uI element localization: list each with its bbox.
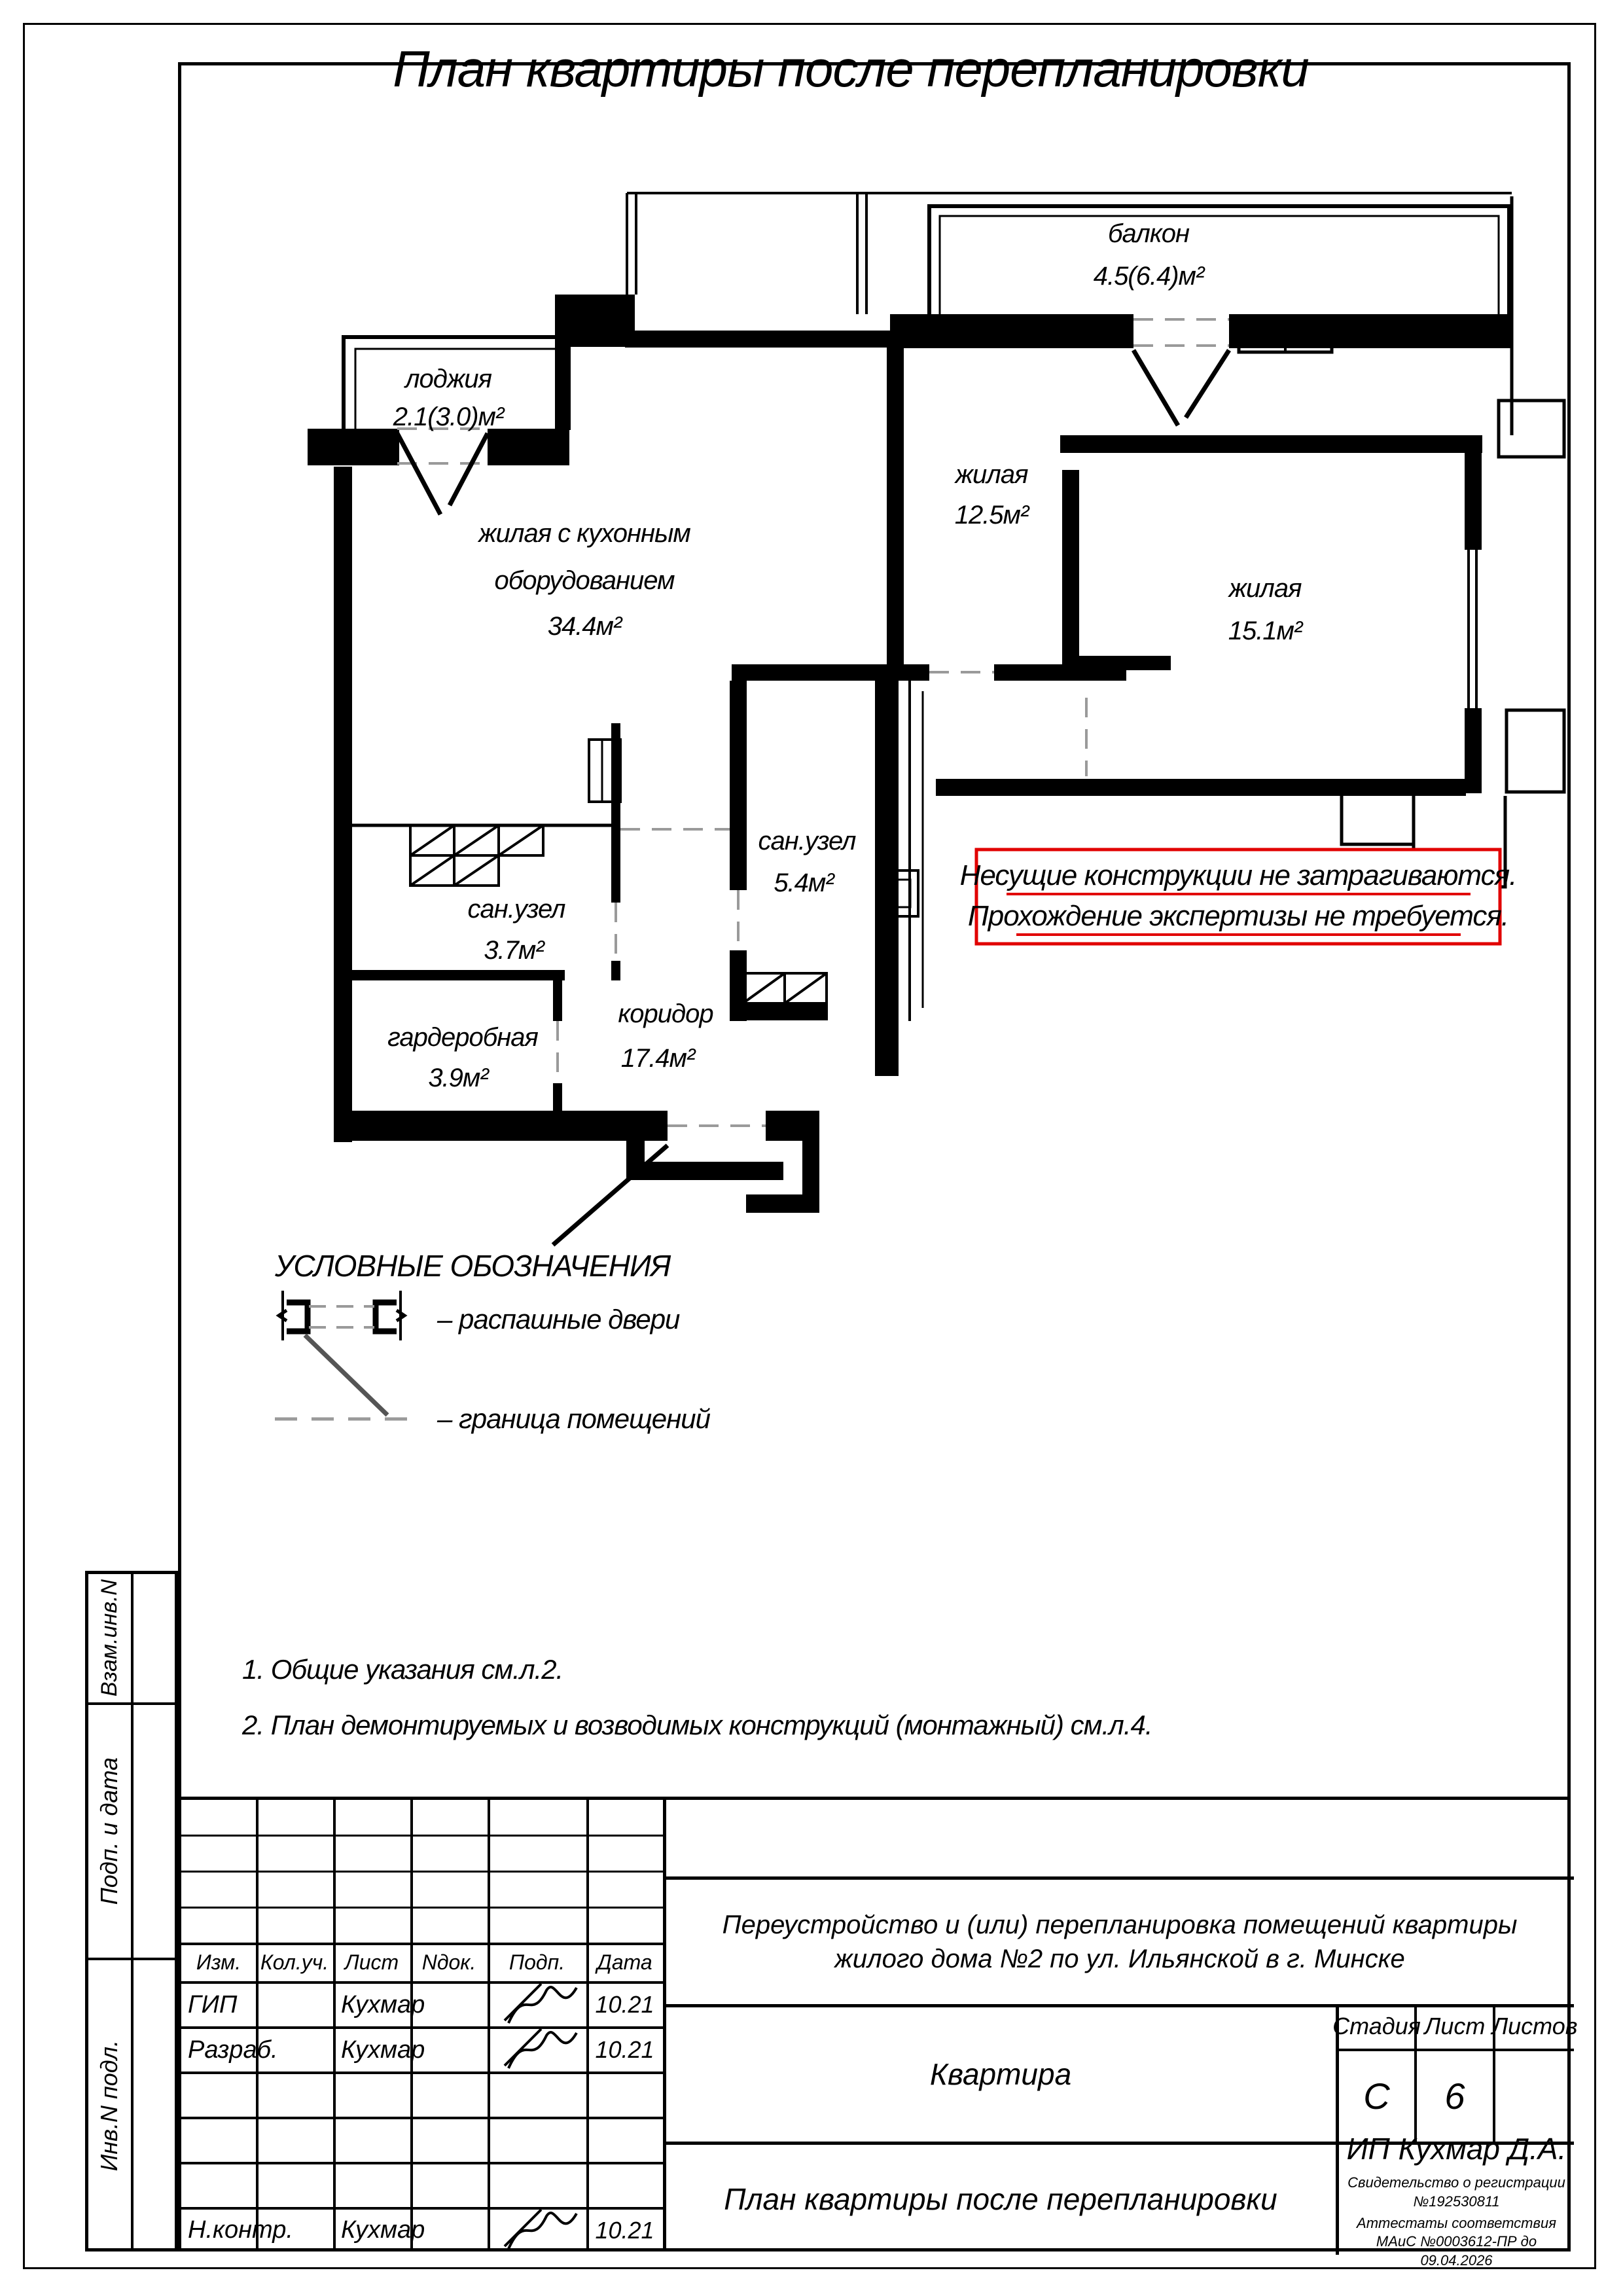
tb-col-list: Лист: [333, 1944, 410, 1981]
tb-date-gip: 10.21: [586, 1984, 663, 2026]
room-zhilaya2-area: 15.1м²: [1228, 617, 1304, 645]
note-2: 2. План демонтируемых и возводимых конст…: [241, 1710, 1152, 1740]
room-balkon-name: балкон: [1108, 219, 1190, 248]
tb-doc-title: План квартиры после перепланировки: [666, 2145, 1336, 2255]
tb-date-razrab: 10.21: [586, 2029, 663, 2072]
room-sanuzel1-name: сан.узел: [758, 827, 856, 855]
tb-col-izm: Изм.: [181, 1944, 256, 1981]
room-sanuzel2-area: 3.7м²: [484, 936, 545, 965]
room-lodzhiya-name: лоджия: [404, 365, 492, 393]
tb-name-nkontr: Кухмар: [341, 2210, 485, 2251]
tb-sheets-label: Листов: [1495, 2004, 1574, 2049]
tb-sheet-label: Лист: [1417, 2004, 1493, 2049]
note-1: 1. Общие указания см.л.2.: [242, 1654, 563, 1685]
room-koridor-name: коридор: [618, 999, 713, 1028]
room-koridor-area: 17.4м²: [621, 1044, 696, 1073]
room-balkon-area: 4.5(6.4)м²: [1094, 262, 1205, 291]
sidebar-label-inv: Инв.N подл.: [94, 2040, 125, 2171]
tb-col-ndok: Nдок.: [410, 1944, 488, 1981]
room-kitchen-area: 34.4м²: [548, 612, 623, 641]
door-symbol-icon: [279, 1291, 404, 1415]
page-title: План квартиры после перепланировки: [393, 40, 1309, 98]
tb-col-data: Дата: [586, 1944, 663, 1981]
sidebar-label-vzam: Взам.инв.N: [95, 1579, 124, 1696]
room-zhilaya1-name: жилая: [954, 460, 1029, 489]
tb-role-gip: ГИП: [188, 1984, 332, 2026]
notes: 1. Общие указания см.л.2. 2. План демонт…: [241, 1654, 1152, 1740]
tb-company-cell: ИП Кухмар Д.А. Свидетельство о регистрац…: [1339, 2145, 1574, 2255]
red-note-line1: Несущие конструкции не затрагиваются.: [960, 859, 1517, 891]
tb-project-line2: жилого дома №2 по ул. Ильянской в г. Мин…: [834, 1942, 1404, 1976]
title-block: Изм. Кол.уч. Лист Nдок. Подп. Дата ГИП К…: [178, 1797, 1571, 2251]
red-note-line2: Прохождение экспертизы не требуется.: [968, 900, 1508, 932]
room-garderob-area: 3.9м²: [428, 1064, 490, 1092]
tb-stage-value: С: [1339, 2051, 1414, 2142]
tb-name-gip: Кухмар: [341, 1984, 485, 2026]
tb-sheet-value: 6: [1417, 2051, 1493, 2142]
room-zhilaya2-name: жилая: [1228, 574, 1302, 603]
tb-date-nkontr: 10.21: [586, 2210, 663, 2251]
room-zhilaya1-area: 12.5м²: [955, 501, 1030, 529]
sidebar-label-podp: Подп. и дата: [94, 1757, 125, 1905]
room-lodzhiya-area: 2.1(3.0)м²: [393, 403, 505, 431]
drawing-sheet: План квартиры после перепланировки: [0, 0, 1623, 2296]
legend-boundary-label: – граница помещений: [437, 1403, 711, 1434]
sidebar-table: Взам.инв.N Подп. и дата Инв.N подл.: [85, 1571, 178, 2251]
signature-gip: [495, 1981, 594, 2027]
tb-company: ИП Кухмар Д.А.: [1347, 2130, 1567, 2169]
room-kitchen-line2: оборудованием: [495, 566, 675, 595]
tb-stage-label: Стадия: [1339, 2004, 1414, 2049]
room-kitchen-line1: жилая с кухонным: [477, 519, 690, 548]
door-leaves: [397, 350, 1229, 1245]
signature-razrab: [495, 2026, 594, 2072]
tb-role-nkontr: Н.контр.: [188, 2210, 332, 2251]
red-note-box: Несущие конструкции не затрагиваются. Пр…: [960, 850, 1517, 944]
legend-title: УСЛОВНЫЕ ОБОЗНАЧЕНИЯ: [274, 1249, 671, 1283]
room-garderob-name: гардеробная: [387, 1023, 538, 1052]
legend: УСЛОВНЫЕ ОБОЗНАЧЕНИЯ – распашные двери –…: [274, 1249, 711, 1434]
tb-cert2: Аттестаты соответствия МАиС №0003612-ПР …: [1339, 2214, 1574, 2270]
tb-col-koluch: Кол.уч.: [256, 1944, 333, 1981]
room-sanuzel2-name: сан.узел: [468, 895, 565, 924]
tb-name-razrab: Кухмар: [341, 2029, 485, 2072]
legend-doors-label: – распашные двери: [437, 1304, 680, 1335]
tb-project-line1: Переустройство и (или) перепланировка по…: [722, 1908, 1518, 1942]
signature-nkontr: [495, 2207, 594, 2253]
tb-object: Квартира: [666, 2007, 1336, 2142]
room-sanuzel1-area: 5.4м²: [774, 869, 835, 897]
tb-col-podp: Подп.: [488, 1944, 586, 1981]
tb-role-razrab: Разраб.: [188, 2029, 332, 2072]
tb-project: Переустройство и (или) перепланировка по…: [666, 1880, 1574, 2004]
tb-cert1: Свидетельство о регистрации №192530811: [1339, 2174, 1574, 2211]
